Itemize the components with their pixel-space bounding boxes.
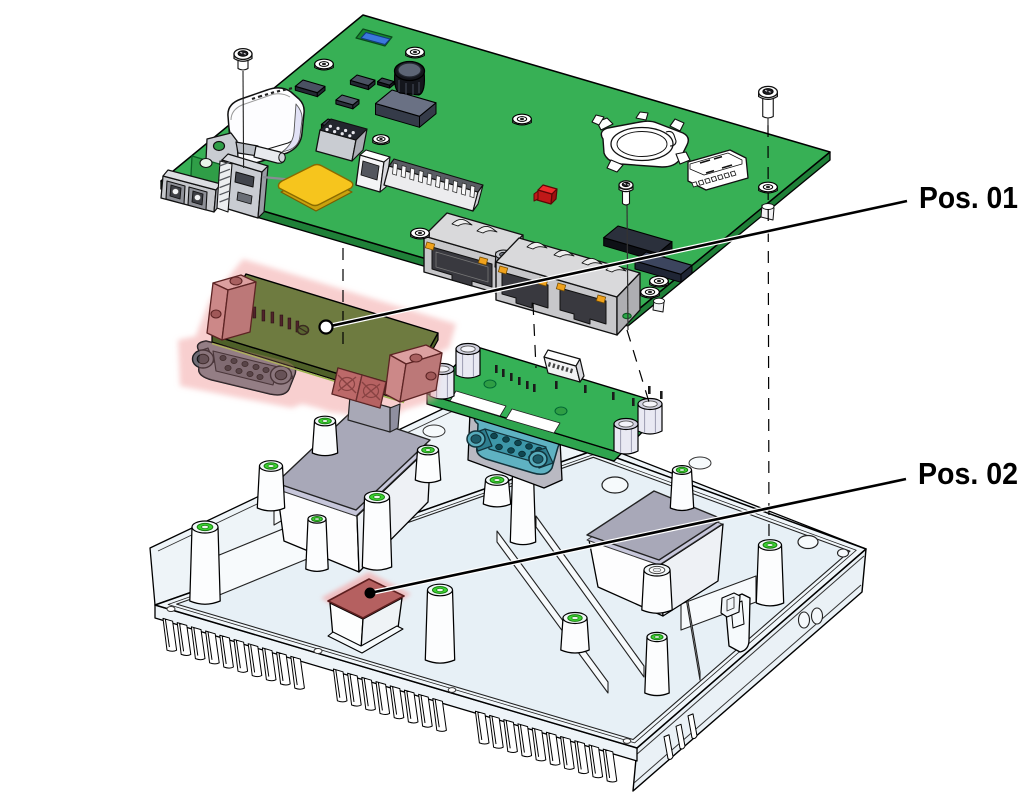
svg-text:Pos. 02: Pos. 02 xyxy=(918,456,1018,491)
svg-text:Pos. 01: Pos. 01 xyxy=(919,180,1018,215)
